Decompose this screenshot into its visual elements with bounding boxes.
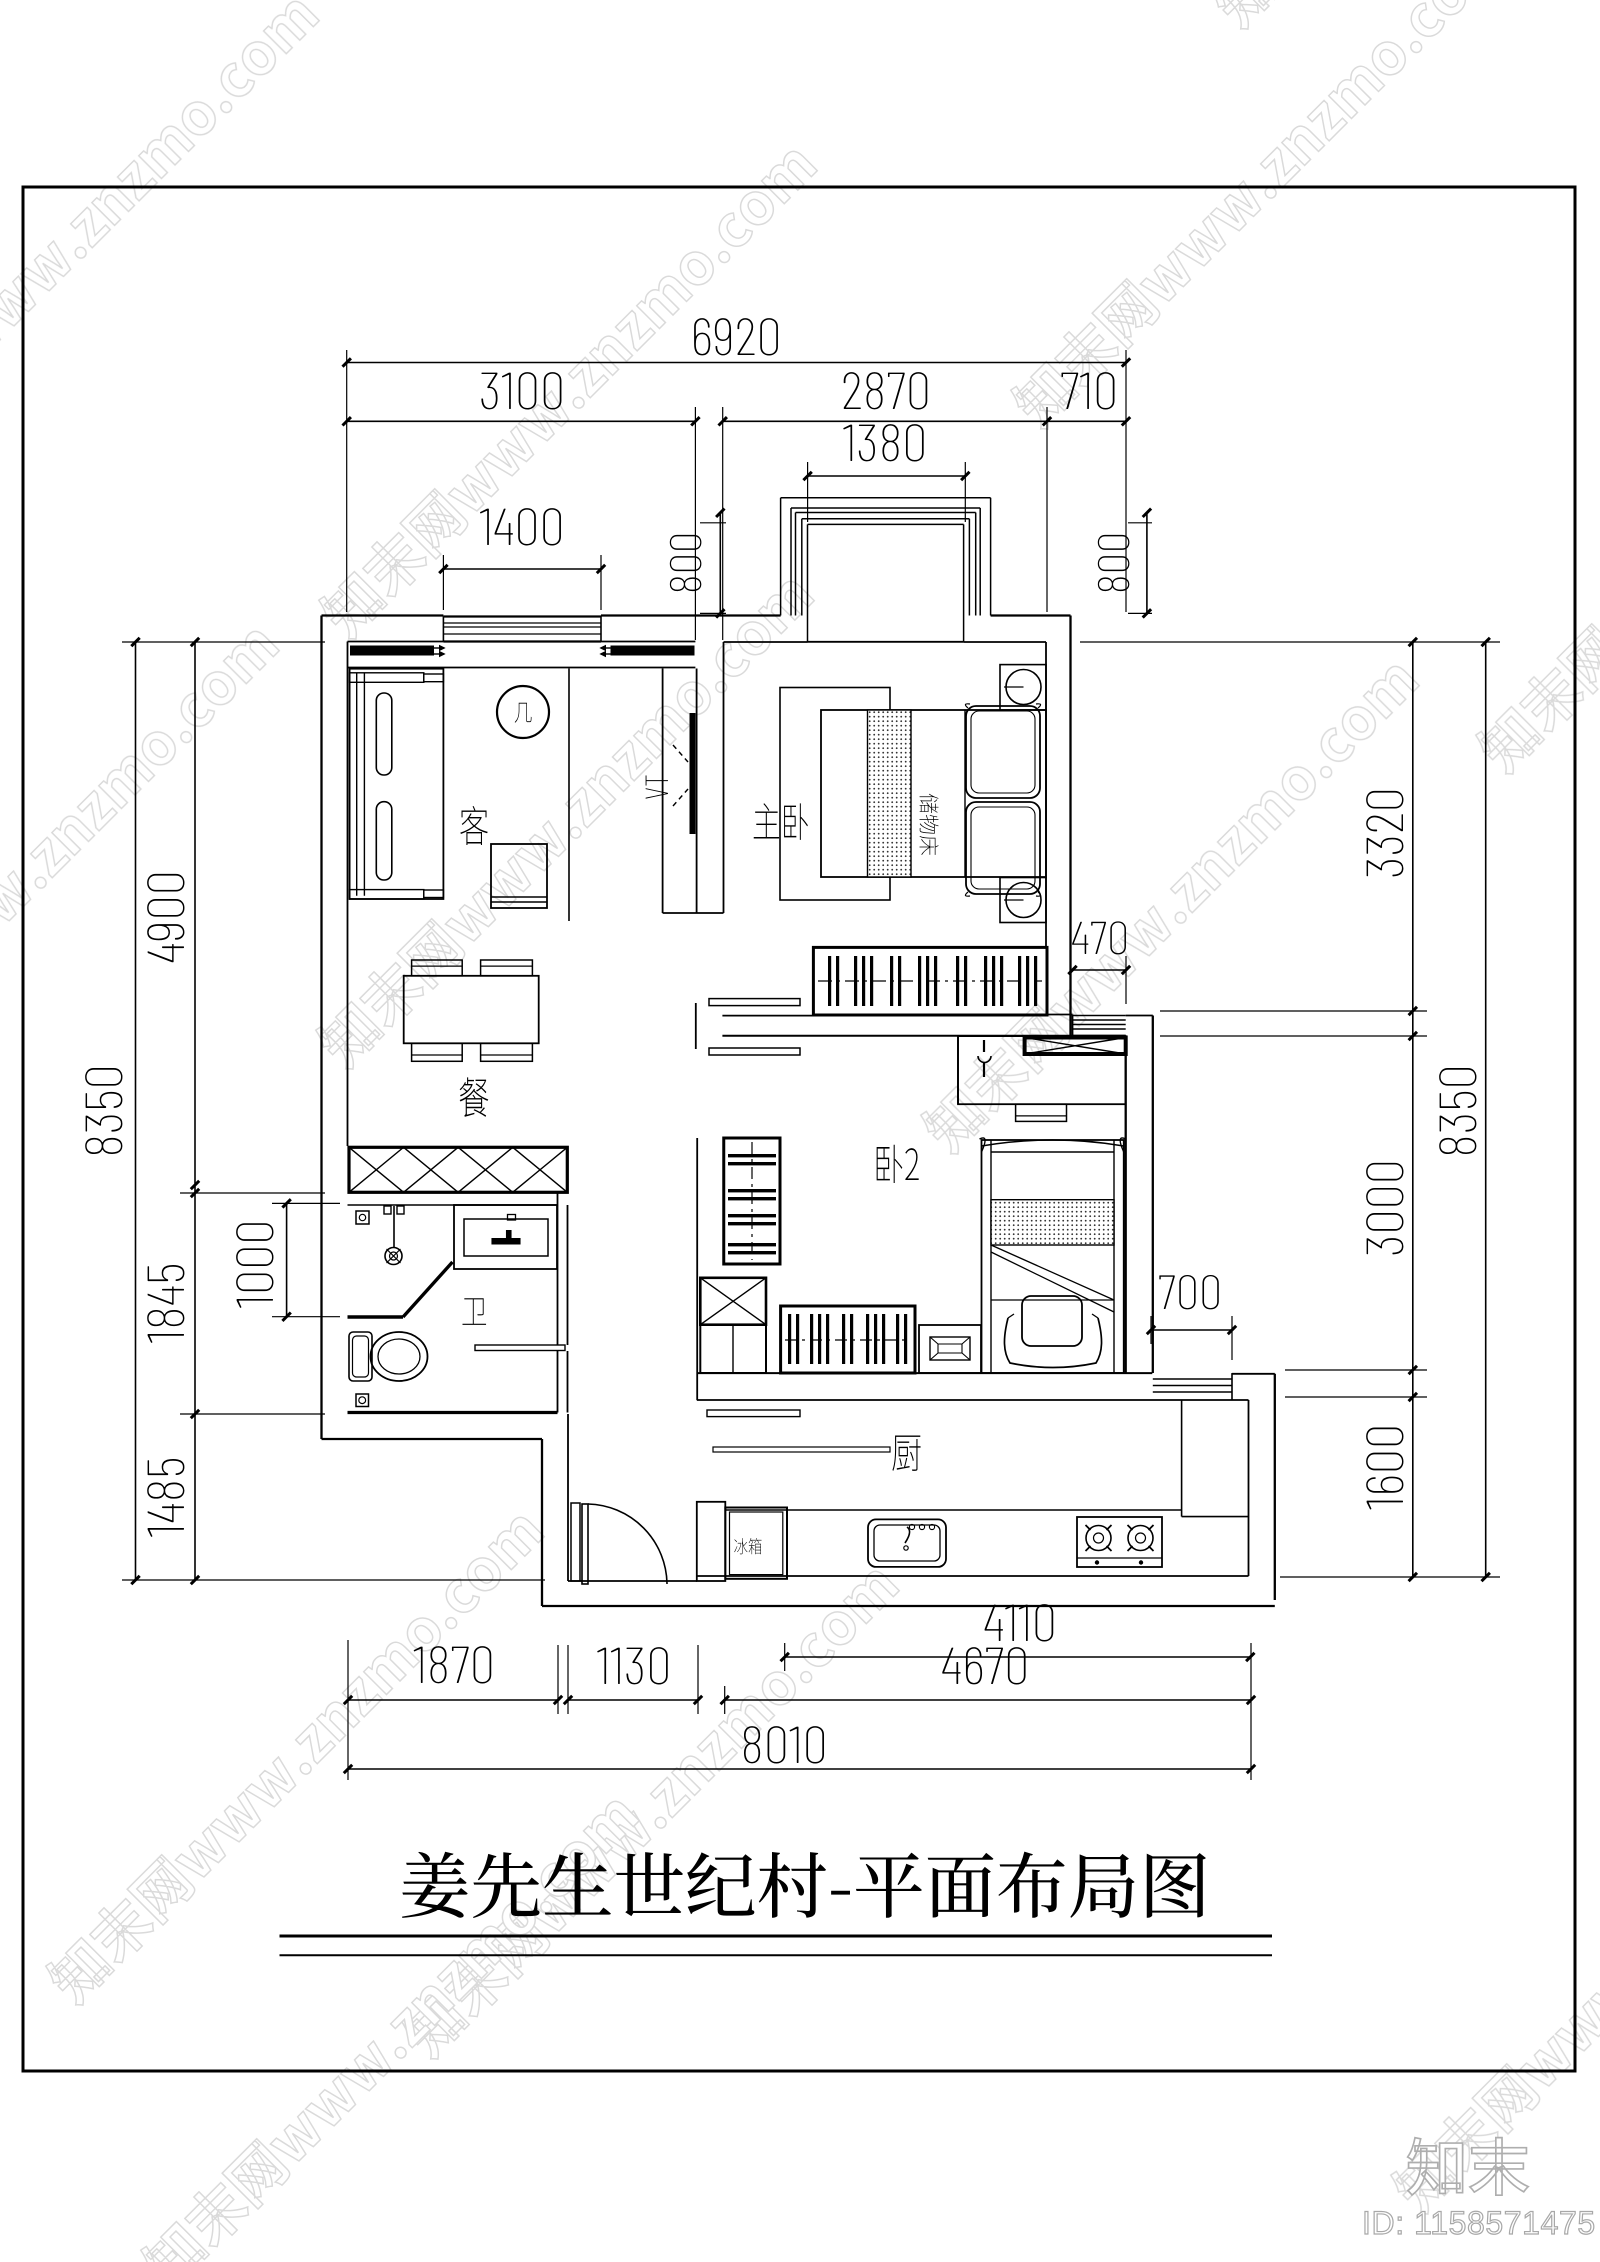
svg-text:ID: 1158571475: ID: 1158571475	[1362, 2205, 1596, 2241]
